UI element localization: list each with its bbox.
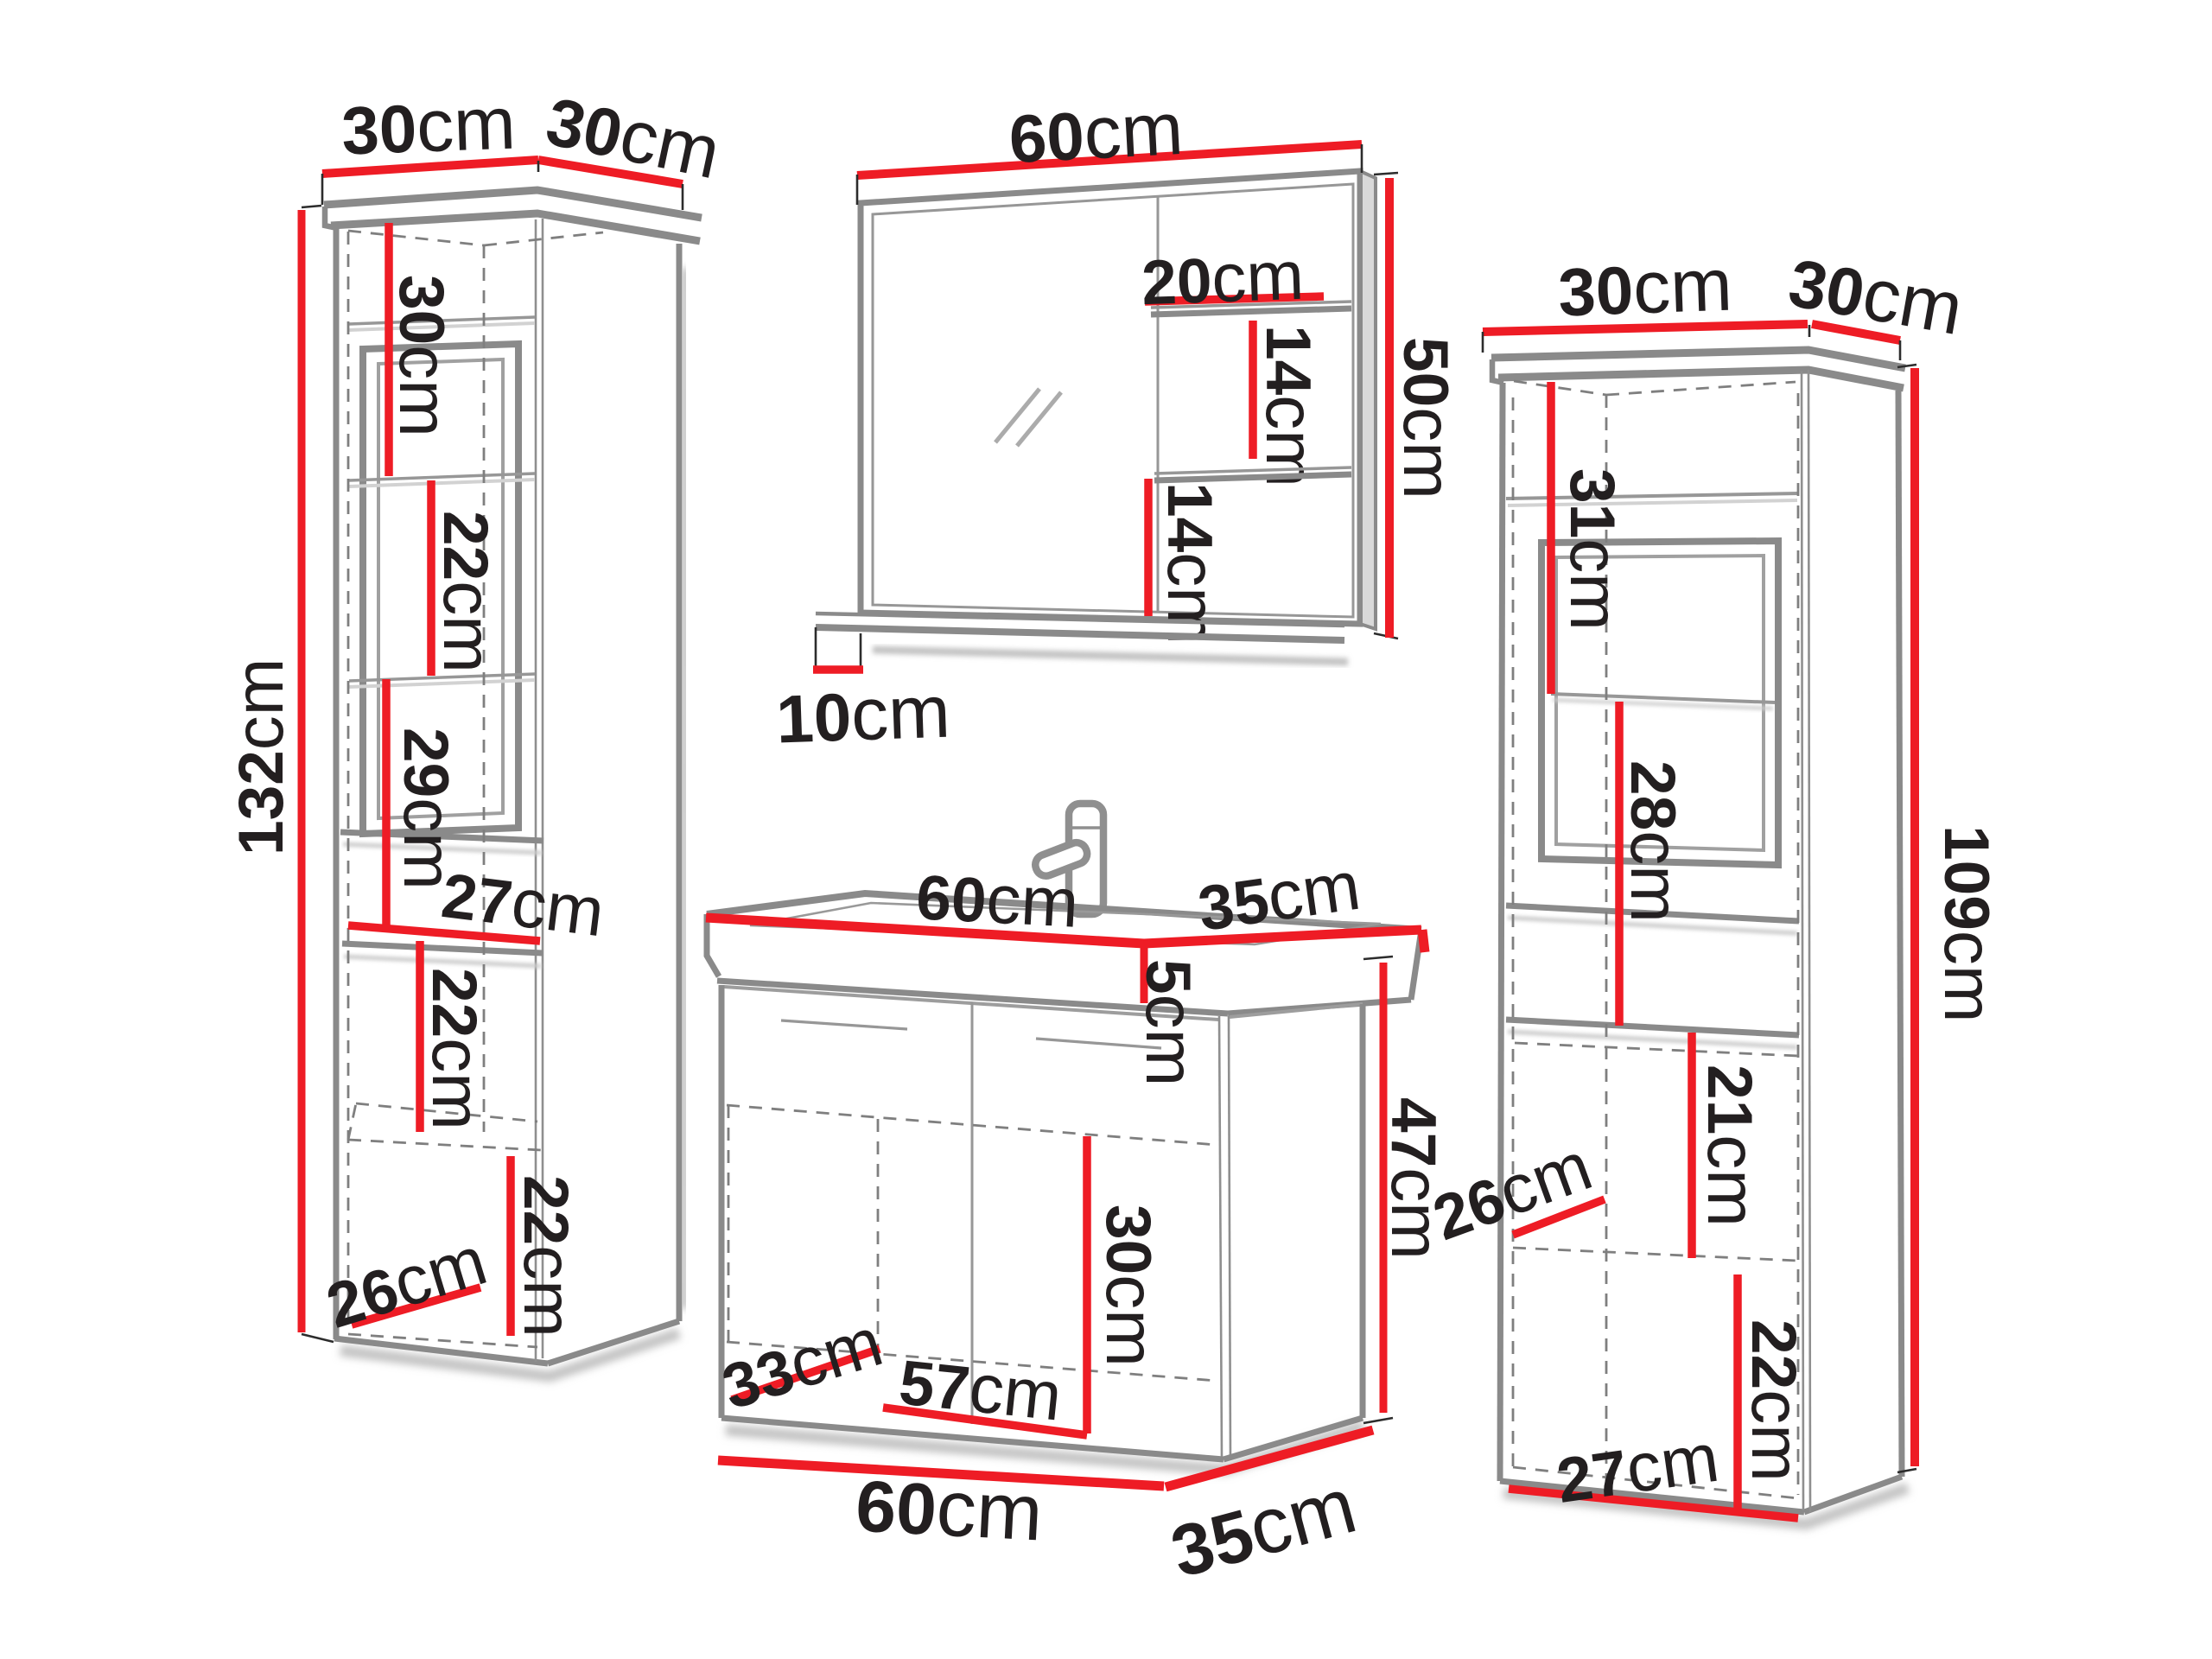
svg-text:22cm: 22cm xyxy=(510,1175,587,1338)
svg-text:22cm: 22cm xyxy=(429,511,506,673)
svg-text:20cm: 20cm xyxy=(1141,237,1306,320)
svg-text:50cm: 50cm xyxy=(1389,337,1466,499)
svg-text:31cm: 31cm xyxy=(1556,468,1633,631)
svg-text:30cm: 30cm xyxy=(340,82,518,171)
svg-text:109cm: 109cm xyxy=(1930,825,2007,1022)
svg-text:5cm: 5cm xyxy=(1132,959,1209,1086)
svg-text:10cm: 10cm xyxy=(775,671,952,760)
svg-text:60cm: 60cm xyxy=(1007,87,1185,179)
svg-text:28cm: 28cm xyxy=(1617,760,1694,923)
svg-text:60cm: 60cm xyxy=(854,1459,1045,1557)
svg-text:22cm: 22cm xyxy=(1738,1319,1815,1482)
svg-text:132cm: 132cm xyxy=(220,658,297,855)
svg-text:21cm: 21cm xyxy=(1694,1065,1770,1227)
svg-text:22cm: 22cm xyxy=(418,968,495,1130)
svg-text:30cm: 30cm xyxy=(385,275,462,437)
svg-text:60cm: 60cm xyxy=(914,856,1080,942)
svg-text:14cm: 14cm xyxy=(1252,325,1329,487)
svg-text:30cm: 30cm xyxy=(1092,1205,1169,1367)
svg-text:30cm: 30cm xyxy=(1557,244,1734,333)
